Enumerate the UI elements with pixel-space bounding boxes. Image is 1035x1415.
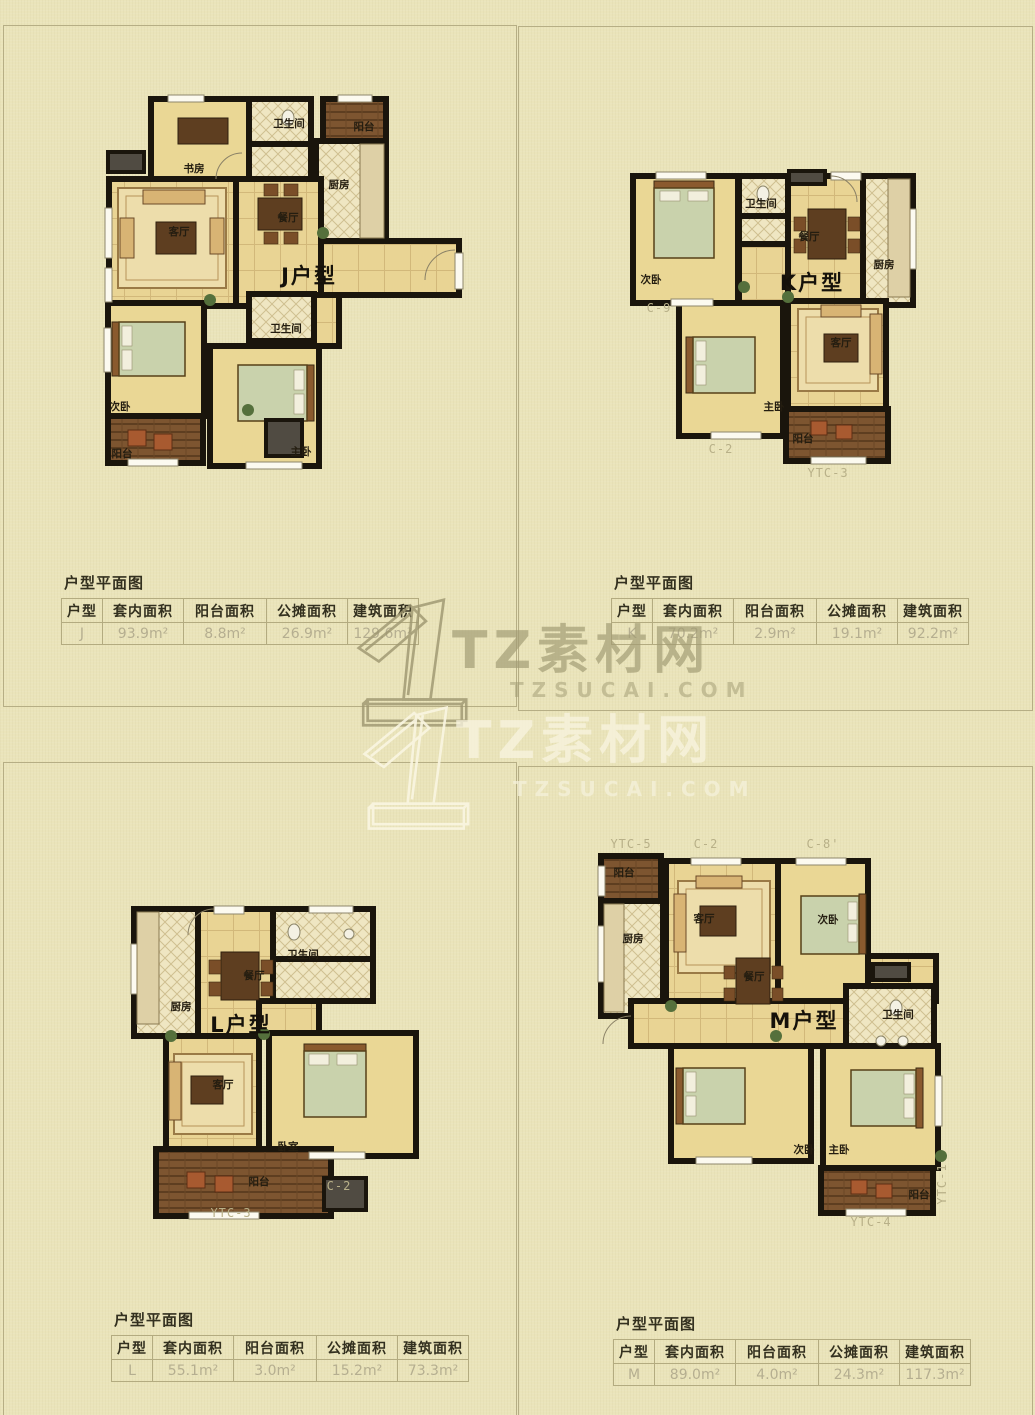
asset-sheet: 书房 卫生间 阳台 厨房 客厅 餐厅 卫生间 次卧 主卧 阳台 J户型 户型平面…	[0, 0, 1035, 1415]
room-balcony-top	[323, 99, 386, 141]
col-header: 户型	[614, 1340, 655, 1364]
room-label: 客厅	[830, 336, 852, 349]
area-table: 户型 套内面积 阳台面积 公摊面积 建筑面积 L 55.1m² 3.0m² 15…	[111, 1335, 469, 1382]
table-row: J 93.9m² 8.8m² 26.9m² 129.6m²	[62, 623, 419, 645]
room-label: 阳台	[793, 432, 814, 445]
cell-inner-area: 89.0m²	[655, 1364, 736, 1386]
floorplan-l: 厨房 餐厅 卫生间 客厅 卧室 阳台 C-2 YTC-3 L户型	[129, 904, 424, 1229]
room-label: 阳台	[354, 120, 375, 133]
table-title: 户型平面图	[614, 572, 969, 593]
cell-gross-area: 117.3m²	[900, 1364, 971, 1386]
room-label: 厨房	[874, 258, 895, 271]
window-code: YTC-3	[210, 1206, 251, 1220]
cell-shared-area: 19.1m²	[817, 623, 898, 645]
room-label: 卫生间	[273, 117, 305, 130]
room-label: 客厅	[212, 1078, 234, 1091]
room-label: 客厅	[693, 912, 715, 925]
cell-balcony-area: 4.0m²	[736, 1364, 819, 1386]
cell-gross-area: 129.6m²	[348, 623, 419, 645]
room-label: 主卧	[291, 445, 312, 458]
cell-inner-area: 70.2m²	[653, 623, 734, 645]
panel-m: 阳台 厨房 客厅 次卧 餐厅 卫生间 次卧 主卧 阳台 YTC-5 C-2 C-…	[518, 766, 1033, 1415]
room-label: 阳台	[249, 1175, 270, 1188]
col-header: 公摊面积	[817, 599, 898, 623]
window-code: YTC-4	[850, 1215, 891, 1229]
room-corridor	[321, 241, 459, 295]
area-table-l: 户型平面图 户型 套内面积 阳台面积 公摊面积 建筑面积 L 55.1m² 3.…	[111, 1309, 469, 1382]
room-label: 厨房	[329, 178, 350, 191]
room-label: 次卧	[641, 273, 662, 286]
floorplan-j: 书房 卫生间 阳台 厨房 客厅 餐厅 卫生间 次卧 主卧 阳台 J户型	[98, 88, 478, 488]
room-label: 卫生间	[287, 948, 319, 961]
room-label: 客厅	[168, 225, 190, 238]
room-label: 餐厅	[798, 230, 820, 243]
cell-shared-area: 26.9m²	[267, 623, 348, 645]
table-title: 户型平面图	[616, 1313, 971, 1334]
col-header: 套内面积	[103, 599, 184, 623]
plan-type-label: K户型	[780, 271, 844, 295]
cell-shared-area: 24.3m²	[819, 1364, 900, 1386]
cell-gross-area: 73.3m²	[398, 1360, 469, 1382]
table-row: L 55.1m² 3.0m² 15.2m² 73.3m²	[112, 1360, 469, 1382]
panel-l: 厨房 餐厅 卫生间 客厅 卧室 阳台 C-2 YTC-3 L户型 户型平面图 户…	[3, 762, 517, 1415]
col-header: 建筑面积	[898, 599, 969, 623]
room-bath-lower	[739, 216, 788, 244]
room-label: 餐厅	[743, 970, 765, 983]
room-label: 主卧	[829, 1143, 850, 1156]
col-header: 阳台面积	[736, 1340, 819, 1364]
cell-type: L	[112, 1360, 153, 1382]
table-title: 户型平面图	[64, 572, 419, 593]
room-bath-lobby	[249, 144, 311, 179]
col-header: 公摊面积	[819, 1340, 900, 1364]
door-arc	[603, 1016, 631, 1044]
window-code: YTC-5	[610, 837, 651, 851]
room-label: 阳台	[614, 866, 635, 879]
area-table: 户型 套内面积 阳台面积 公摊面积 建筑面积 J 93.9m² 8.8m² 26…	[61, 598, 419, 645]
col-header: 阳台面积	[734, 599, 817, 623]
window-code: C-8'	[807, 837, 840, 851]
panel-j: 书房 卫生间 阳台 厨房 客厅 餐厅 卫生间 次卧 主卧 阳台 J户型 户型平面…	[3, 25, 517, 707]
window-code: C-2	[709, 442, 734, 456]
area-table-k: 户型平面图 户型 套内面积 阳台面积 公摊面积 建筑面积 K 70.2m² 2.…	[611, 572, 969, 645]
cell-type: K	[612, 623, 653, 645]
cell-balcony-area: 2.9m²	[734, 623, 817, 645]
room-label: 厨房	[171, 1000, 192, 1013]
area-table: 户型 套内面积 阳台面积 公摊面积 建筑面积 K 70.2m² 2.9m² 19…	[611, 598, 969, 645]
floorplan-k: 次卧 卫生间 餐厅 厨房 主卧 客厅 阳台 C-9 C-2 YTC-3 K户型	[626, 169, 921, 484]
room-label: 次卧	[110, 400, 131, 413]
col-header: 户型	[112, 1336, 153, 1360]
panel-k: 次卧 卫生间 餐厅 厨房 主卧 客厅 阳台 C-9 C-2 YTC-3 K户型 …	[518, 26, 1033, 711]
window-code: C-9	[647, 301, 672, 315]
room-label: 次卧	[794, 1143, 815, 1156]
room-label: 餐厅	[277, 211, 299, 224]
table-row: M 89.0m² 4.0m² 24.3m² 117.3m²	[614, 1364, 971, 1386]
cell-inner-area: 55.1m²	[153, 1360, 234, 1382]
table-row: K 70.2m² 2.9m² 19.1m² 92.2m²	[612, 623, 969, 645]
room-label: 卫生间	[270, 322, 302, 335]
room-label: 次卧	[818, 913, 839, 926]
room-label: 主卧	[764, 400, 785, 413]
col-header: 公摊面积	[317, 1336, 398, 1360]
area-table-m: 户型平面图 户型 套内面积 阳台面积 公摊面积 建筑面积 M 89.0m² 4.…	[613, 1313, 971, 1386]
room-label: 卫生间	[745, 197, 777, 210]
plan-type-label: J户型	[279, 264, 337, 288]
col-header: 公摊面积	[267, 599, 348, 623]
col-header: 套内面积	[655, 1340, 736, 1364]
room-label: 餐厅	[243, 969, 265, 982]
cell-type: J	[62, 623, 103, 645]
col-header: 建筑面积	[348, 599, 419, 623]
cell-inner-area: 93.9m²	[103, 623, 184, 645]
cell-balcony-area: 3.0m²	[234, 1360, 317, 1382]
col-header: 户型	[612, 599, 653, 623]
plan-type-label: L户型	[210, 1013, 271, 1037]
cell-balcony-area: 8.8m²	[184, 623, 267, 645]
col-header: 建筑面积	[900, 1340, 971, 1364]
cell-type: M	[614, 1364, 655, 1386]
room-label: 厨房	[623, 932, 644, 945]
col-header: 套内面积	[153, 1336, 234, 1360]
room-bath-lower	[273, 959, 373, 1001]
plan-type-label: M户型	[770, 1009, 839, 1033]
table-title: 户型平面图	[114, 1309, 469, 1330]
col-header: 阳台面积	[234, 1336, 317, 1360]
col-header: 套内面积	[653, 599, 734, 623]
room-label: 阳台	[909, 1188, 930, 1201]
window-code: C-2	[694, 837, 719, 851]
cell-shared-area: 15.2m²	[317, 1360, 398, 1382]
window-code: C-2	[327, 1179, 352, 1193]
col-header: 阳台面积	[184, 599, 267, 623]
window-code: YTC-3	[807, 466, 848, 480]
room-label: 阳台	[112, 447, 133, 460]
room-label: 卫生间	[882, 1008, 914, 1021]
window-code: YTC-1	[935, 1163, 949, 1204]
col-header: 户型	[62, 599, 103, 623]
col-header: 建筑面积	[398, 1336, 469, 1360]
area-table: 户型 套内面积 阳台面积 公摊面积 建筑面积 M 89.0m² 4.0m² 24…	[613, 1339, 971, 1386]
room-label: 卧室	[278, 1140, 299, 1153]
cell-gross-area: 92.2m²	[898, 623, 969, 645]
room-label: 书房	[184, 162, 205, 175]
area-table-j: 户型平面图 户型 套内面积 阳台面积 公摊面积 建筑面积 J 93.9m² 8.…	[61, 572, 419, 645]
floorplan-m: 阳台 厨房 客厅 次卧 餐厅 卫生间 次卧 主卧 阳台 YTC-5 C-2 C-…	[596, 836, 1016, 1236]
